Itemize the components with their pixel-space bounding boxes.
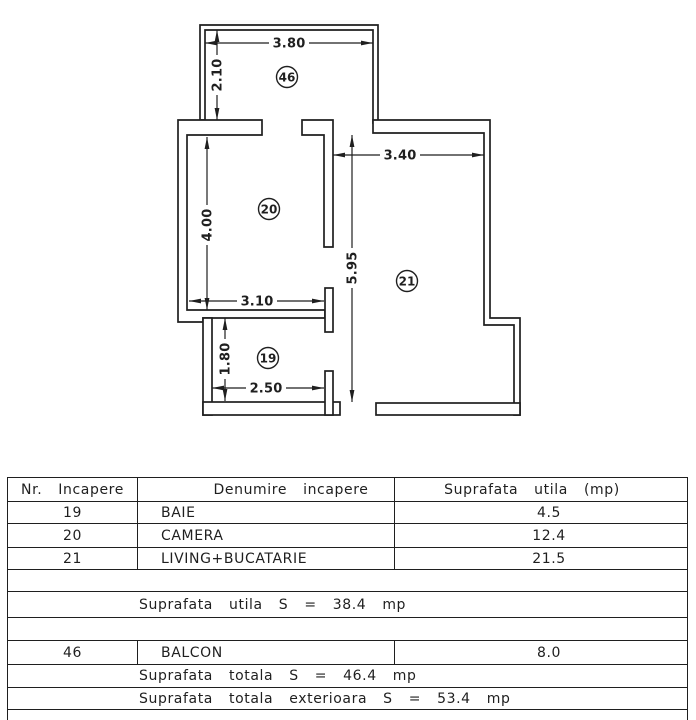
dim-camera-height: 4.00: [200, 205, 216, 245]
dim-living-height: 5.95: [345, 248, 361, 288]
bottom-right-wall: [376, 403, 520, 415]
dimensions: 3.80 2.10 3.40 4.00 5.95 3.10: [189, 30, 484, 402]
table-row-baie: 19 BAIE 4.5: [8, 502, 687, 524]
dim-label-bath-height: 1.80: [219, 343, 234, 376]
dim-label-camera-width: 3.10: [241, 295, 274, 310]
total-exterior-text: Suprafata totala exterioara S = 53.4 mp: [8, 691, 510, 707]
total-exterior-row: Suprafata totala exterioara S = 53.4 mp: [8, 688, 687, 710]
spacer-row: [8, 618, 687, 641]
room-number-bath: 19: [260, 351, 277, 365]
room-balloon-balcony: 46: [277, 67, 298, 88]
room-number-living: 21: [399, 274, 416, 288]
cell-area: 4.5: [395, 502, 687, 523]
spacer-row: [8, 570, 687, 592]
cell-name: BAIE: [138, 502, 395, 523]
bath-bottom-wall: [203, 402, 340, 415]
dim-label-bath-width: 2.50: [250, 382, 283, 397]
cell-nr: 46: [8, 641, 138, 664]
header-denumire-incapere: Denumire incapere: [138, 478, 395, 501]
door-jamb-upper: [325, 288, 333, 332]
dim-balcony-depth: 2.10: [210, 55, 226, 95]
table-row-camera: 20 CAMERA 12.4: [8, 524, 687, 548]
dim-balcony-width: 3.80: [269, 36, 309, 52]
dim-label-camera-height: 4.00: [201, 209, 216, 242]
dim-bath-height: 1.80: [218, 339, 234, 379]
table-row-living: 21 LIVING+BUCATARIE 21.5: [8, 548, 687, 570]
cell-name: CAMERA: [138, 524, 395, 547]
cell-area: 8.0: [395, 641, 687, 664]
dim-label-living-height: 5.95: [346, 252, 361, 285]
cell-nr: 21: [8, 548, 138, 569]
dim-bath-width: 2.50: [246, 381, 286, 397]
dim-living-width: 3.40: [380, 148, 420, 164]
door-jamb-lower: [325, 371, 333, 415]
total-row: Suprafata totala S = 46.4 mp: [8, 665, 687, 688]
dim-label-living-width: 3.40: [384, 149, 417, 164]
room-balloon-living: 21: [397, 271, 418, 292]
cell-nr: 20: [8, 524, 138, 547]
cell-name: LIVING+BUCATARIE: [138, 548, 395, 569]
header-nr-incapere: Nr. Incapere: [8, 478, 138, 501]
room-labels: 46 20 21 19: [258, 67, 418, 369]
subtotal-text: Suprafata utila S = 38.4 mp: [8, 597, 406, 613]
table-tail: [8, 710, 687, 720]
dim-label-balcony-depth: 2.10: [211, 59, 226, 92]
cell-area: 21.5: [395, 548, 687, 569]
dim-camera-width: 3.10: [237, 294, 277, 310]
bath-left-wall: [203, 318, 212, 415]
floor-plan: 3.80 2.10 3.40 4.00 5.95 3.10: [0, 0, 696, 470]
right-walls: [373, 120, 520, 415]
total-text: Suprafata totala S = 46.4 mp: [8, 668, 417, 684]
room-number-camera: 20: [261, 202, 278, 216]
table-row-balcon: 46 BALCON 8.0: [8, 641, 687, 665]
cell-area: 12.4: [395, 524, 687, 547]
middle-wall: [302, 120, 333, 247]
table-header-row: Nr. Incapere Denumire incapere Suprafata…: [8, 478, 687, 502]
room-balloon-bath: 19: [258, 348, 279, 369]
dim-label-balcony-width: 3.80: [273, 37, 306, 52]
cell-nr: 19: [8, 502, 138, 523]
room-number-balcony: 46: [279, 70, 296, 84]
room-balloon-camera: 20: [259, 199, 280, 220]
cell-name: BALCON: [138, 641, 395, 664]
header-suprafata-utila: Suprafata utila (mp): [395, 478, 687, 501]
subtotal-row: Suprafata utila S = 38.4 mp: [8, 592, 687, 618]
area-table: Nr. Incapere Denumire incapere Suprafata…: [7, 477, 688, 720]
